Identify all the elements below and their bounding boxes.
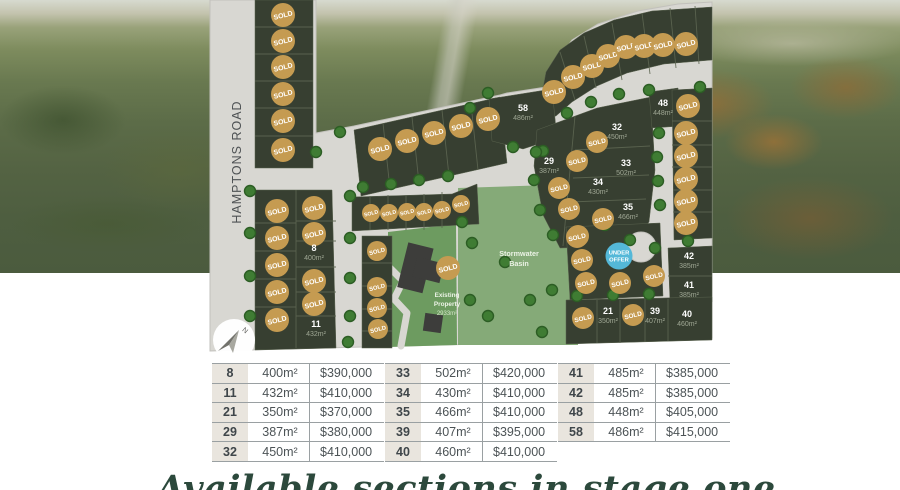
- sold-marker: SOLD: [302, 269, 326, 293]
- lot-area-cell: 432m²: [251, 384, 310, 403]
- lot-number-cell: 48: [558, 403, 594, 422]
- compass-icon: N: [213, 319, 255, 361]
- lot-price-cell: $405,000: [656, 403, 730, 422]
- sold-marker: SOLD: [476, 107, 500, 131]
- sold-marker: SOLD: [572, 307, 594, 329]
- sold-marker: SOLD: [265, 280, 289, 304]
- svg-text:40: 40: [682, 309, 692, 319]
- lot-price-cell: $410,000: [310, 442, 384, 461]
- tree-icon: [457, 217, 468, 228]
- table-row: 32450m²$410,000: [212, 442, 384, 462]
- table-row: 42485m²$385,000: [558, 384, 730, 404]
- sold-marker: SOLD: [558, 198, 580, 220]
- tree-icon: [465, 103, 476, 114]
- lot-price-cell: $420,000: [483, 364, 557, 383]
- price-table-1: 8400m²$390,00011432m²$410,00021350m²$370…: [212, 363, 384, 462]
- tree-icon: [465, 295, 476, 306]
- tree-icon: [483, 88, 494, 99]
- tree-icon: [483, 311, 494, 322]
- svg-text:41: 41: [684, 280, 694, 290]
- sold-marker: SOLD: [571, 249, 593, 271]
- lot-area-cell: 466m²: [424, 403, 483, 422]
- tree-icon: [311, 147, 322, 158]
- existing-property-label-2: Property: [434, 301, 461, 308]
- sold-marker: SOLD: [449, 114, 473, 138]
- sold-marker: SOLD: [265, 308, 289, 332]
- lot-area-cell: 350m²: [251, 403, 310, 422]
- sold-marker: SOLD: [271, 138, 295, 162]
- svg-text:385m²: 385m²: [679, 292, 700, 299]
- tree-icon: [650, 243, 661, 254]
- tree-icon: [625, 235, 636, 246]
- lot-area-cell: 485m²: [597, 364, 656, 383]
- table-row: 58486m²$415,000: [558, 423, 730, 443]
- sold-marker: SOLD: [368, 137, 392, 161]
- sold-marker: SOLD: [367, 277, 387, 297]
- lot-number-cell: 29: [212, 423, 248, 442]
- lot-number-cell: 8: [212, 364, 248, 383]
- tree-icon: [245, 186, 256, 197]
- tree-icon: [531, 147, 542, 158]
- lot-number-cell: 41: [558, 364, 594, 383]
- svg-text:502m²: 502m²: [616, 170, 637, 177]
- tree-icon: [345, 191, 356, 202]
- table-row: 21350m²$370,000: [212, 403, 384, 423]
- sold-marker: SOLD: [592, 208, 614, 230]
- svg-text:350m²: 350m²: [598, 318, 619, 325]
- lot-price-cell: $385,000: [656, 384, 730, 403]
- tree-icon: [343, 337, 354, 348]
- lot-price-cell: $410,000: [483, 384, 557, 403]
- stormwater-label-2: Basin: [509, 259, 529, 268]
- lot-number-cell: 39: [385, 423, 421, 442]
- tree-icon: [644, 85, 655, 96]
- tree-icon: [548, 230, 559, 241]
- svg-text:8: 8: [311, 243, 316, 253]
- svg-text:450m²: 450m²: [607, 134, 628, 141]
- tree-icon: [245, 228, 256, 239]
- table-row: 34430m²$410,000: [385, 384, 557, 404]
- lot-price-cell: $415,000: [656, 423, 730, 442]
- tree-icon: [345, 233, 356, 244]
- sold-marker: SOLD: [367, 298, 387, 318]
- sold-marker: SOLD: [302, 292, 326, 316]
- price-table-3: 41485m²$385,00042485m²$385,00048448m²$40…: [558, 363, 730, 442]
- svg-text:387m²: 387m²: [539, 168, 560, 175]
- sold-marker: SOLD: [566, 226, 588, 248]
- sold-marker: SOLD: [265, 226, 289, 250]
- svg-text:48: 48: [658, 98, 668, 108]
- lot-price-cell: $390,000: [310, 364, 384, 383]
- lot-area-cell: 430m²: [424, 384, 483, 403]
- tree-icon: [644, 289, 655, 300]
- lot-price-cell: $395,000: [483, 423, 557, 442]
- sold-marker: SOLD: [542, 80, 566, 104]
- lot-price-cell: $410,000: [483, 403, 557, 422]
- tree-icon: [467, 238, 478, 249]
- sold-marker: SOLD: [566, 150, 588, 172]
- lot-area-cell: 400m²: [251, 364, 310, 383]
- sold-marker: SOLD: [674, 211, 698, 235]
- svg-text:34: 34: [593, 177, 603, 187]
- sold-marker: SOLD: [674, 144, 698, 168]
- lot-number-cell: 58: [558, 423, 594, 442]
- svg-text:432m²: 432m²: [306, 331, 327, 338]
- sold-marker: SOLD: [368, 319, 388, 339]
- sold-marker: SOLD: [586, 131, 608, 153]
- sold-marker: SOLD: [651, 33, 675, 57]
- sold-marker: SOLD: [674, 189, 698, 213]
- sold-marker: SOLD: [622, 304, 644, 326]
- tree-icon: [562, 108, 573, 119]
- sold-marker: SOLD: [643, 265, 665, 287]
- tree-icon: [245, 271, 256, 282]
- table-row: 11432m²$410,000: [212, 384, 384, 404]
- sold-marker: SOLD: [415, 203, 433, 221]
- sold-marker: SOLD: [398, 203, 416, 221]
- sold-marker: SOLD: [674, 121, 698, 145]
- sold-marker: SOLD: [271, 55, 295, 79]
- lot-price-cell: $410,000: [310, 384, 384, 403]
- lot-area-cell: 387m²: [251, 423, 310, 442]
- flyer-page: SOLDSOLDSOLDSOLDSOLDSOLDSOLDSOLDSOLDSOLD…: [0, 0, 900, 490]
- sold-marker: SOLD: [362, 204, 380, 222]
- lot-number-cell: 11: [212, 384, 248, 403]
- sold-marker: SOLD: [422, 121, 446, 145]
- svg-text:29: 29: [544, 156, 554, 166]
- svg-text:407m²: 407m²: [645, 318, 666, 325]
- tree-icon: [386, 179, 397, 190]
- hamptons-road-label: HAMPTONS ROAD: [230, 100, 244, 223]
- tree-icon: [345, 273, 356, 284]
- tree-icon: [529, 175, 540, 186]
- svg-text:448m²: 448m²: [653, 110, 674, 117]
- sold-marker: SOLD: [676, 94, 700, 118]
- tree-icon: [345, 311, 356, 322]
- sold-marker: SOLD: [271, 29, 295, 53]
- lot-area-cell: 407m²: [424, 423, 483, 442]
- tree-icon: [358, 182, 369, 193]
- under-offer-marker: UNDEROFFER: [606, 243, 633, 270]
- lot-area-cell: 485m²: [597, 384, 656, 403]
- table-row: 29387m²$380,000: [212, 423, 384, 443]
- svg-text:39: 39: [650, 306, 660, 316]
- sold-marker: SOLD: [265, 199, 289, 223]
- lot-price-cell: $410,000: [483, 442, 557, 461]
- stormwater-label-1: Stormwater: [499, 249, 539, 258]
- under-offer-label: UNDER: [609, 251, 630, 257]
- table-row: 33502m²$420,000: [385, 363, 557, 384]
- table-row: 41485m²$385,000: [558, 363, 730, 384]
- sold-marker: SOLD: [452, 195, 470, 213]
- svg-text:33: 33: [621, 158, 631, 168]
- table-row: 8400m²$390,000: [212, 363, 384, 384]
- tree-icon: [586, 97, 597, 108]
- under-offer-label: OFFER: [609, 258, 629, 264]
- table-row: 35466m²$410,000: [385, 403, 557, 423]
- sold-marker: SOLD: [609, 272, 631, 294]
- tree-icon: [245, 311, 256, 322]
- lot-number-cell: 32: [212, 442, 248, 461]
- sold-marker: SOLD: [302, 196, 326, 220]
- lot-area-cell: 460m²: [424, 442, 483, 461]
- table-row: 40460m²$410,000: [385, 442, 557, 462]
- tree-icon: [655, 200, 666, 211]
- svg-text:58: 58: [518, 103, 528, 113]
- sold-marker: SOLD: [271, 82, 295, 106]
- sold-marker: SOLD: [674, 32, 698, 56]
- sold-marker: SOLD: [436, 256, 460, 280]
- svg-text:385m²: 385m²: [679, 263, 700, 270]
- svg-text:21: 21: [603, 306, 613, 316]
- svg-text:430m²: 430m²: [588, 189, 609, 196]
- tree-icon: [614, 89, 625, 100]
- existing-property-label-1: Existing: [435, 292, 460, 299]
- tree-icon: [654, 128, 665, 139]
- tree-icon: [414, 175, 425, 186]
- sold-marker: SOLD: [367, 241, 387, 261]
- sold-marker: SOLD: [433, 201, 451, 219]
- svg-text:466m²: 466m²: [618, 214, 639, 221]
- tree-icon: [537, 327, 548, 338]
- sold-marker: SOLD: [674, 167, 698, 191]
- sold-marker: SOLD: [380, 204, 398, 222]
- tree-icon: [443, 171, 454, 182]
- sold-marker: SOLD: [265, 253, 289, 277]
- svg-text:35: 35: [623, 202, 633, 212]
- tree-icon: [525, 295, 536, 306]
- svg-text:32: 32: [612, 122, 622, 132]
- lot-number-cell: 34: [385, 384, 421, 403]
- table-row: 39407m²$395,000: [385, 423, 557, 443]
- sold-marker: SOLD: [575, 272, 597, 294]
- lot-area-cell: 450m²: [251, 442, 310, 461]
- tree-icon: [535, 205, 546, 216]
- lot-price-cell: $370,000: [310, 403, 384, 422]
- svg-text:42: 42: [684, 251, 694, 261]
- lot-price-cell: $380,000: [310, 423, 384, 442]
- sold-marker: SOLD: [271, 109, 295, 133]
- sold-marker: SOLD: [395, 129, 419, 153]
- svg-text:400m²: 400m²: [304, 255, 325, 262]
- svg-text:486m²: 486m²: [513, 115, 534, 122]
- lot-number-cell: 35: [385, 403, 421, 422]
- sold-marker: SOLD: [271, 3, 295, 27]
- tree-icon: [683, 236, 694, 247]
- table-row: 48448m²$405,000: [558, 403, 730, 423]
- lot-number-cell: 40: [385, 442, 421, 461]
- sold-marker: SOLD: [548, 177, 570, 199]
- lot-area-cell: 486m²: [597, 423, 656, 442]
- tree-icon: [335, 127, 346, 138]
- page-caption: Available sections in stage one: [157, 468, 757, 490]
- tree-icon: [653, 176, 664, 187]
- lot-price-cell: $385,000: [656, 364, 730, 383]
- price-table-2: 33502m²$420,00034430m²$410,00035466m²$41…: [385, 363, 557, 462]
- tree-icon: [652, 152, 663, 163]
- lot-area-cell: 502m²: [424, 364, 483, 383]
- lot-number-cell: 42: [558, 384, 594, 403]
- lot-number-cell: 21: [212, 403, 248, 422]
- svg-text:460m²: 460m²: [677, 321, 698, 328]
- tree-icon: [547, 285, 558, 296]
- existing-property-area: 2933m²: [437, 311, 457, 317]
- lot-number-cell: 33: [385, 364, 421, 383]
- tree-icon: [695, 82, 706, 93]
- svg-text:11: 11: [311, 319, 321, 329]
- lot-area-cell: 448m²: [597, 403, 656, 422]
- tree-icon: [508, 142, 519, 153]
